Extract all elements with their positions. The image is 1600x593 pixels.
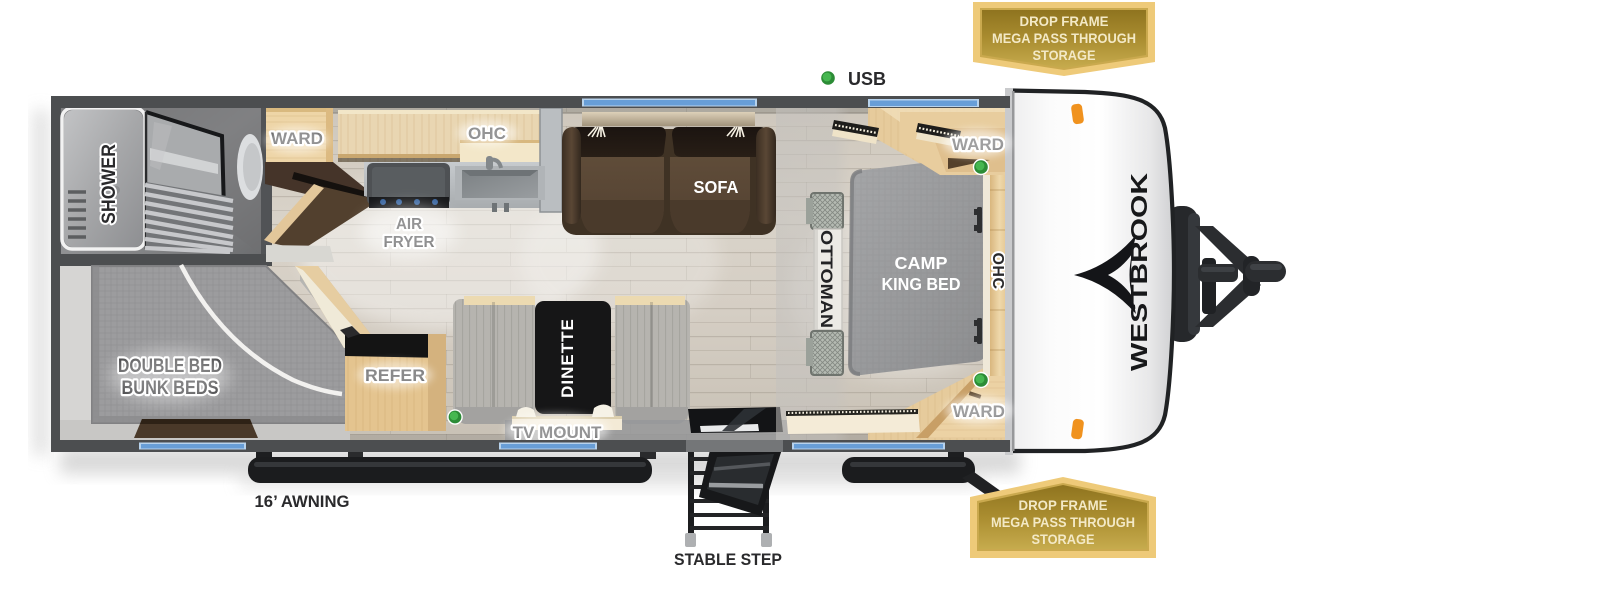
svg-text:SOFA: SOFA [694, 177, 739, 197]
svg-text:KING BED: KING BED [882, 274, 961, 294]
svg-text:MEGA PASS THROUGH: MEGA PASS THROUGH [991, 514, 1135, 530]
svg-text:STORAGE: STORAGE [1032, 531, 1095, 547]
svg-text:STABLE STEP: STABLE STEP [674, 550, 782, 569]
svg-text:DINETTE: DINETTE [558, 318, 577, 398]
svg-text:DROP FRAME: DROP FRAME [1020, 13, 1109, 29]
svg-text:WESTBROOK: WESTBROOK [1126, 173, 1152, 371]
svg-text:USB: USB [848, 69, 886, 89]
svg-text:DROP FRAME: DROP FRAME [1019, 497, 1108, 513]
svg-text:OHC: OHC [989, 252, 1006, 289]
svg-text:CAMP: CAMP [895, 253, 948, 273]
svg-text:STORAGE: STORAGE [1033, 47, 1096, 63]
svg-text:MEGA PASS THROUGH: MEGA PASS THROUGH [992, 30, 1136, 46]
svg-text:16’ AWNING: 16’ AWNING [255, 492, 350, 511]
svg-text:SHOWER: SHOWER [99, 144, 120, 224]
svg-text:OTTOMAN: OTTOMAN [817, 230, 835, 328]
